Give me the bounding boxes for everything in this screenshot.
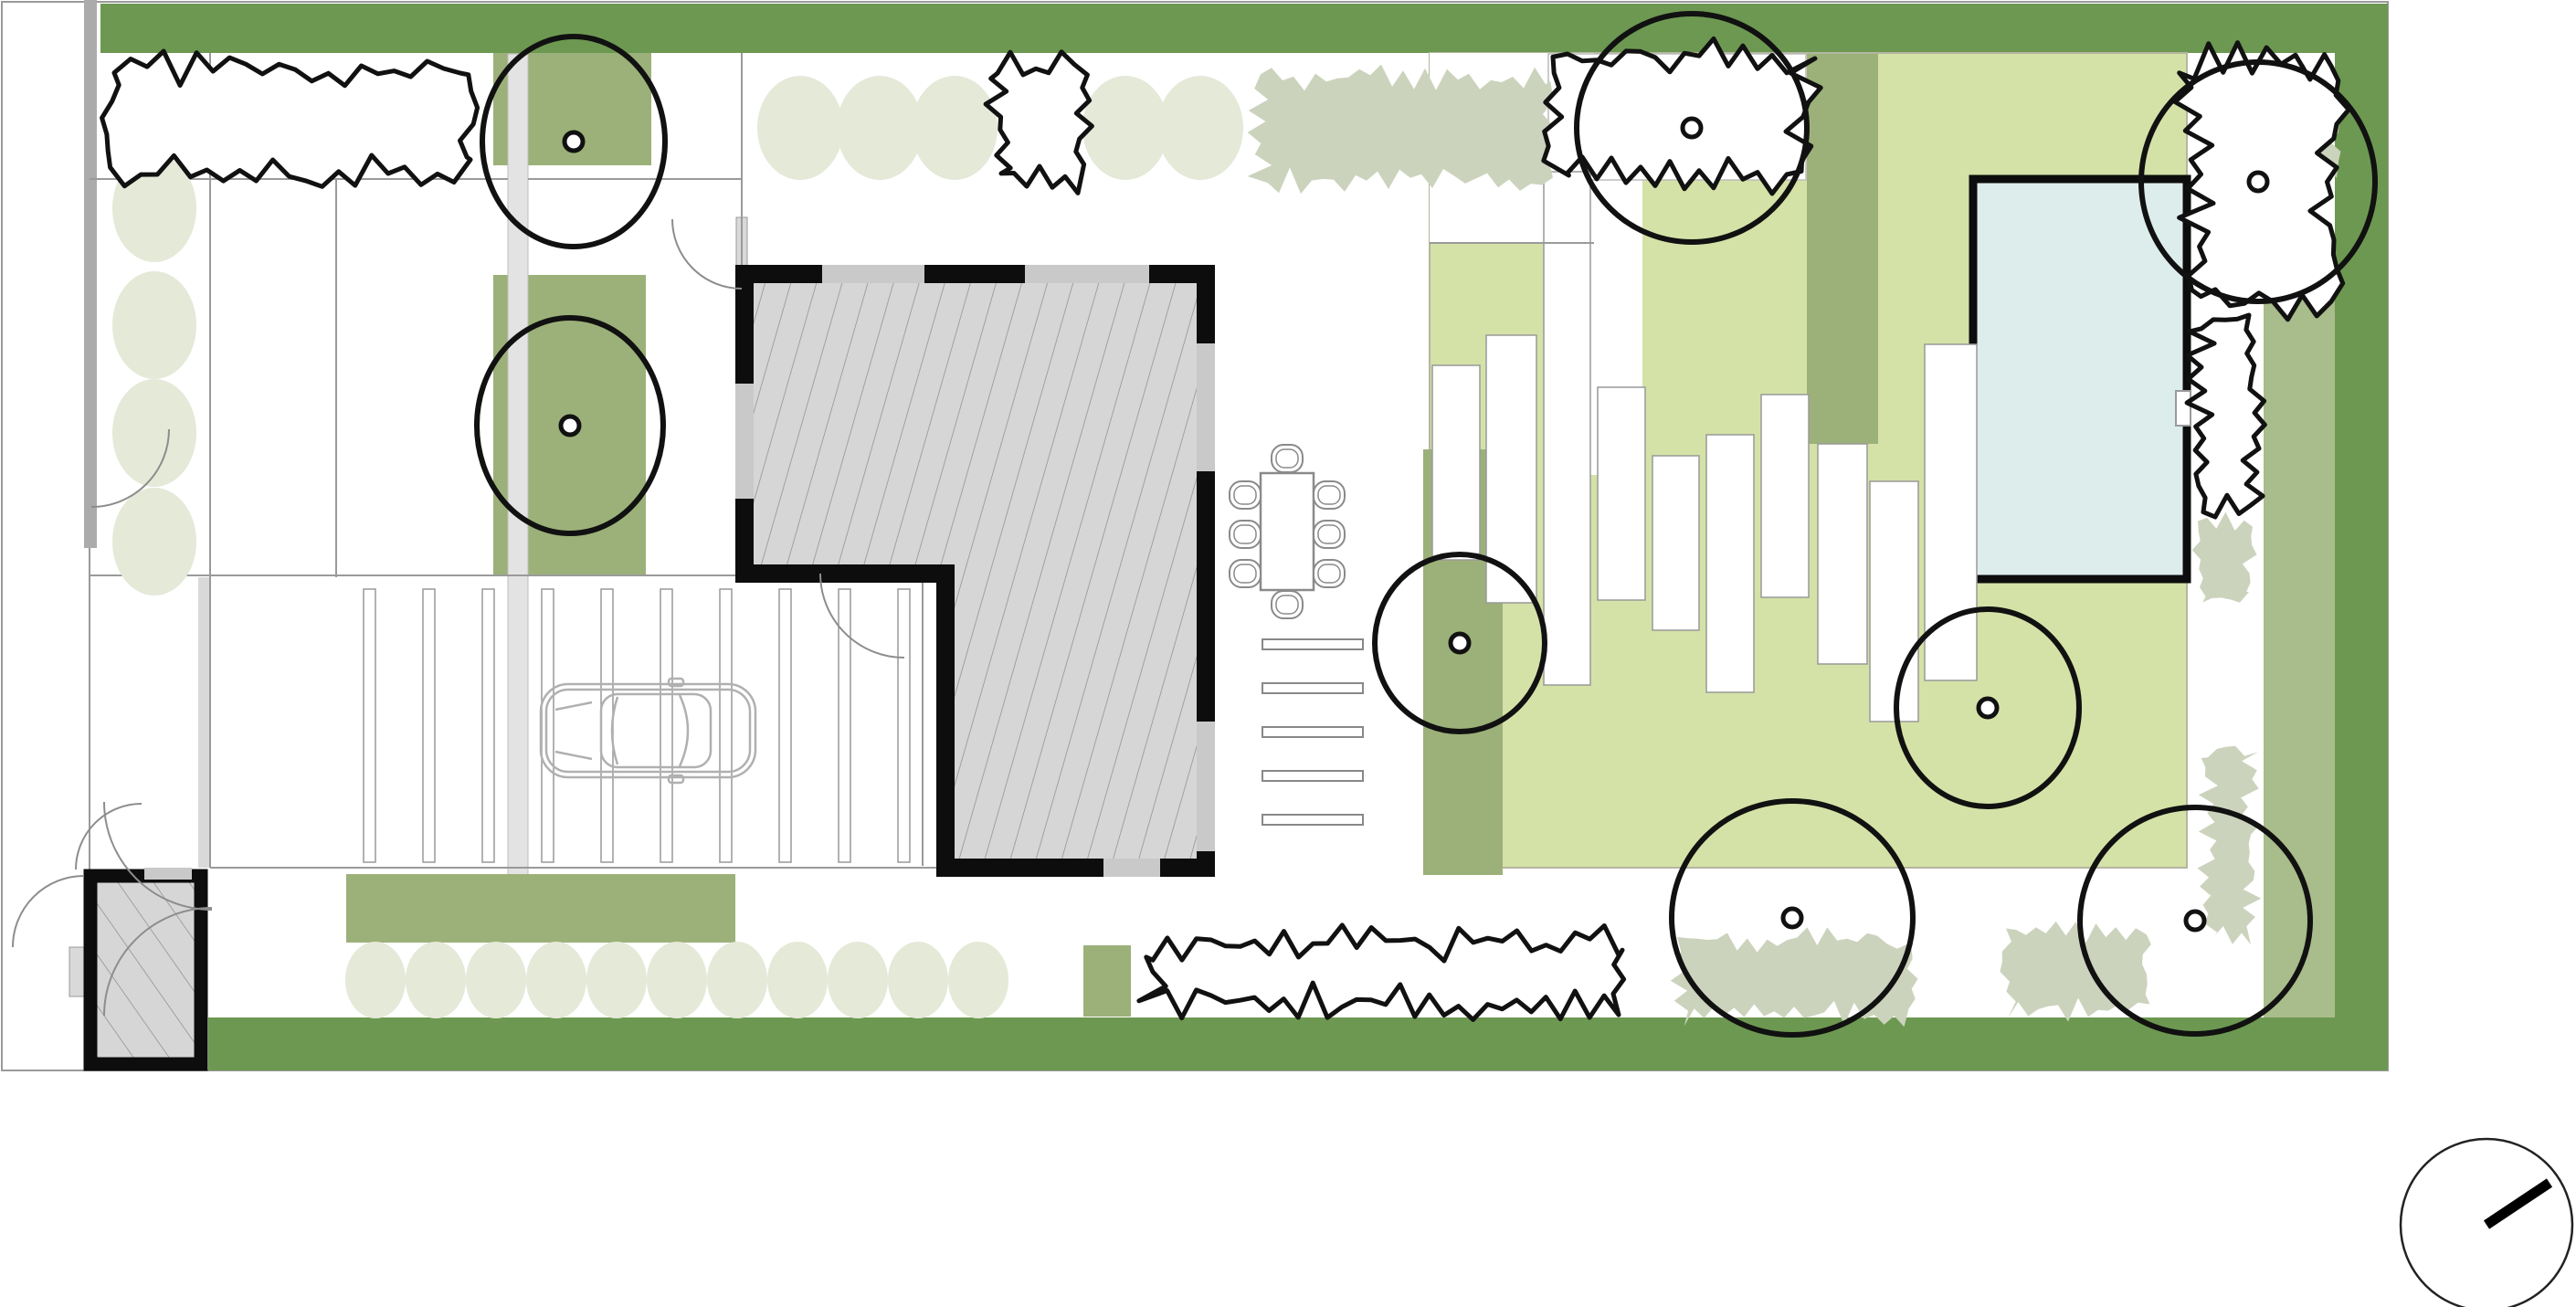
driveway-slat-2 [423,589,435,862]
stepping-shrub-row-bottom-7 [707,942,767,1018]
olive-strip-upper [1807,54,1878,444]
house-window-top-2 [1025,265,1149,283]
garden-step-5 [1262,815,1363,825]
compass-needle-icon [2486,1183,2550,1225]
deck-plank-7 [1761,395,1809,597]
house-window-top-1 [822,265,924,283]
dining-chair-6 [1314,560,1345,587]
deck-plank-1 [1432,365,1480,560]
driveway-green-band [346,874,735,943]
driveway-slat-10 [898,589,910,862]
stepping-shrub-row-bottom-5 [586,942,647,1018]
house-window-bottom [1103,859,1160,877]
dining-chair-4 [1314,481,1345,509]
dining-chair-7 [1272,445,1303,472]
stepping-shrub-row-top-1 [757,76,843,180]
stepping-shrub-row-top-2 [837,76,923,180]
deck-plank-5 [1652,456,1699,630]
garden-step-2 [1262,683,1363,693]
stepping-shrub-col-left-2 [112,271,196,379]
stepping-shrub-row-bottom-11 [948,942,1008,1018]
shed-window-top [144,868,192,880]
groundcover-notch [2192,512,2257,603]
deck-plank-6 [1706,435,1754,692]
tree-top-right-trunk-icon [1683,119,1701,137]
dining-chair-3 [1230,560,1261,587]
tree-left-trunk-icon [561,416,579,435]
site-plan-page [0,0,2576,1307]
site-plan-drawing [0,0,2576,1307]
tree-mid-strip-trunk-icon [1451,634,1469,652]
dining-chair-8 [1272,591,1303,618]
stepping-shrub-row-bottom-1 [345,942,406,1018]
shrub-hedge-top-left [102,51,478,186]
tree-bottom-left-trunk-icon [1783,909,1801,927]
driveway-slat-7 [720,589,732,862]
olive-square-bottom [1083,945,1131,1017]
groundcover-hedge-top [1248,65,1568,195]
driveway-slat-3 [482,589,494,862]
driveway-slat-8 [779,589,791,862]
dining-chair-2 [1230,521,1261,548]
corridor-gray-strip [198,577,211,868]
side-wall-strip [84,0,97,548]
dining-chair-1 [1230,481,1261,509]
stepping-shrub-row-bottom-3 [466,942,526,1018]
walkway-strip [508,54,528,924]
pool-skimmer [2176,391,2191,426]
stepping-shrub-row-top-5 [1157,76,1243,180]
border-band-bottom [208,1017,2388,1070]
driveway-slat-4 [542,589,554,862]
tree-top-right-corner-trunk-icon [2249,173,2267,191]
door-leaf-shed [69,947,84,996]
stepping-shrub-col-left-4 [112,488,196,596]
garden-step-1 [1262,639,1363,649]
driveway-slat-9 [839,589,850,862]
stepping-shrub-row-top-3 [912,76,998,180]
deck-plank-8 [1818,444,1867,664]
border-band-right [2335,4,2388,1070]
stepping-shrub-row-bottom-8 [767,942,828,1018]
border-band-top [100,4,2386,53]
house-window-right-2 [1197,722,1215,851]
deck-plank-3 [1544,172,1590,685]
north-indicator [2401,1139,2572,1307]
right-medium-strip [2264,289,2335,1017]
garden-step-4 [1262,771,1363,781]
tree-lawn-trunk-icon [1979,699,1997,717]
tree-top-left-trunk-icon [565,132,583,151]
stepping-shrub-row-bottom-2 [406,942,466,1018]
driveway-slat-1 [364,589,375,862]
stepping-shrub-row-bottom-10 [888,942,948,1018]
garden-step-3 [1262,727,1363,737]
deck-plank-9 [1870,481,1918,722]
dining-table [1261,473,1314,590]
deck-plank-4 [1598,387,1645,600]
house-window-right-1 [1197,343,1215,471]
stepping-shrub-row-top-4 [1082,76,1168,180]
shed [90,876,201,1064]
house-window-left [735,384,754,499]
stepping-shrub-row-bottom-9 [828,942,888,1018]
stepping-shrub-row-bottom-4 [526,942,586,1018]
tree-bottom-right-trunk-icon [2186,912,2204,930]
stepping-shrub-row-bottom-6 [647,942,707,1018]
dining-chair-5 [1314,521,1345,548]
stepping-shrub-col-left-3 [112,379,196,487]
driveway-slat-6 [660,589,672,862]
